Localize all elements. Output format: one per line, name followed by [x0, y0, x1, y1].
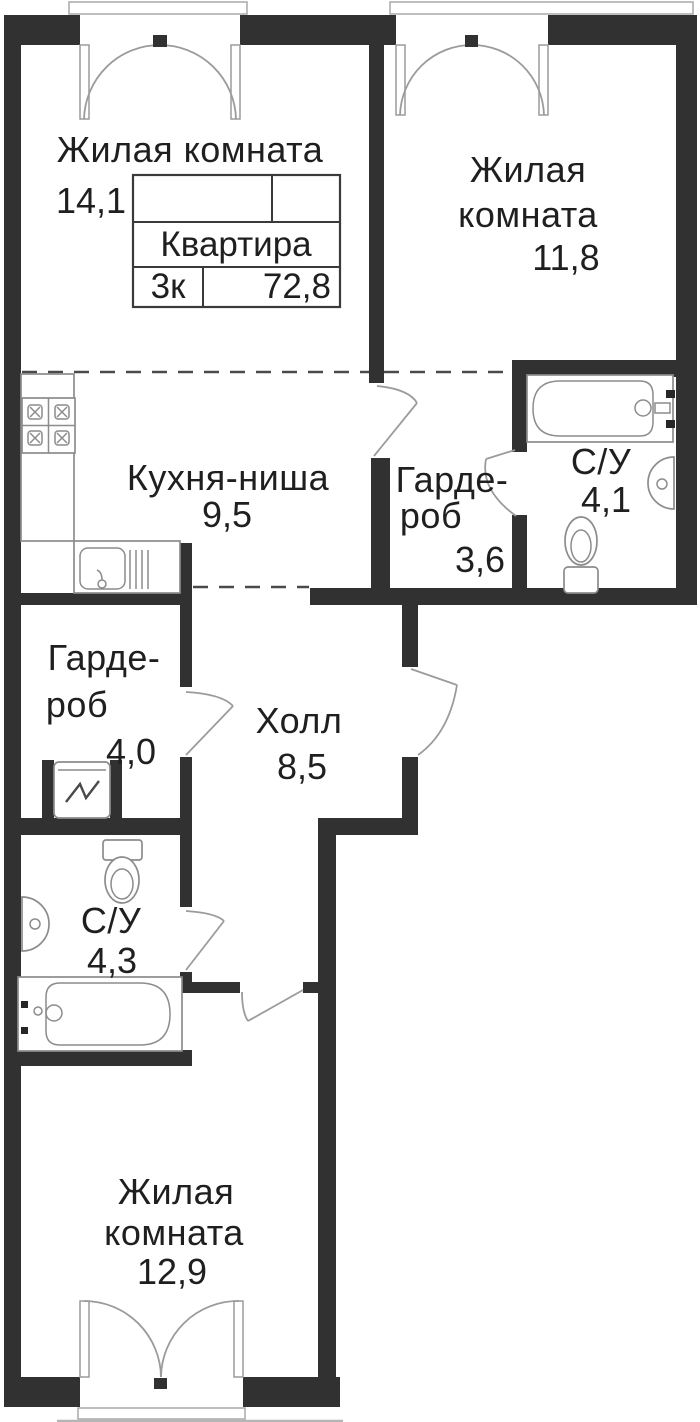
- room-area: 9,5: [202, 494, 252, 535]
- door-swing-arc: [161, 1301, 239, 1377]
- room-area: 4,3: [87, 940, 137, 981]
- wall-kitchen-bottom: [4, 593, 180, 605]
- door-swing-arc: [84, 1301, 161, 1377]
- wall-hall-bottom: [318, 818, 418, 835]
- wall-bathroom-top-left-upper: [512, 363, 527, 452]
- bathtub-outer: [18, 977, 182, 1051]
- wall-bathroom-bottom-right-upper: [180, 835, 192, 907]
- wall-washer-stub-left: [42, 760, 54, 818]
- door-swing-arc: [400, 45, 472, 115]
- room-area: 8,5: [277, 746, 327, 787]
- wall-bathroom-bottom-bottom: [4, 1050, 192, 1066]
- sill-top-right: [390, 2, 693, 14]
- wall-hall-right-upper: [402, 605, 418, 667]
- wall-corridor-bottom-right: [303, 982, 318, 993]
- room-name: Кухня-ниша: [127, 457, 330, 498]
- room-name-line1: Гарде-: [48, 637, 161, 678]
- door-swing-arc: [186, 692, 233, 706]
- wall-bathroom-bottom-top: [4, 818, 192, 835]
- washing-machine-icon: [54, 762, 110, 818]
- room-area: 14,1: [56, 180, 126, 221]
- toilet-icon: [564, 517, 598, 593]
- wall-top-right: [548, 15, 697, 45]
- toilet-tank: [564, 567, 598, 593]
- door-leaf: [234, 1301, 243, 1377]
- toilet-bowl: [565, 517, 597, 565]
- door-wardrobe-bottom: [186, 692, 233, 755]
- toilet-bowl: [105, 857, 139, 903]
- room-name-line1: Жилая: [118, 1171, 234, 1212]
- room-name-line2: комната: [458, 194, 598, 235]
- tap-dot: [666, 420, 675, 428]
- wall-hall-right-lower: [402, 757, 418, 818]
- apartment-info-box: Квартира 3к 72,8: [133, 175, 340, 307]
- info-box-title: Квартира: [160, 225, 312, 264]
- door-leaf: [80, 1301, 89, 1377]
- wall-corridor-bottom-left: [180, 982, 240, 993]
- washbasin-icon: [648, 457, 674, 509]
- room-name-line2: комната: [104, 1212, 244, 1253]
- info-box-total-area: 72,8: [263, 267, 331, 306]
- door-swing-arc: [472, 45, 544, 115]
- door-hinge: [154, 1378, 167, 1389]
- info-box-rooms-count: 3к: [151, 267, 186, 306]
- room-area: 4,1: [581, 479, 631, 520]
- door-leaf-line: [486, 450, 515, 459]
- door-entrance: [411, 669, 457, 755]
- balcony-door-top-left: [80, 35, 240, 119]
- room-name-line1: Гарде-: [396, 459, 509, 500]
- door-leaf-line: [248, 990, 303, 1021]
- wall-right: [676, 15, 697, 605]
- door-living-top-right: [374, 386, 417, 456]
- room-name-line2: роб: [46, 684, 108, 725]
- bathtub-icon: [18, 977, 182, 1051]
- balcony-door-top-right: [396, 35, 548, 115]
- room-name: С/У: [571, 441, 632, 482]
- tap-dot: [21, 1027, 28, 1034]
- room-area: 11,8: [532, 237, 599, 278]
- room-wardrobe-top: Гарде- роб 3,6: [396, 459, 509, 580]
- tap-dot: [666, 390, 675, 398]
- room-living-bottom: Жилая комната 12,9: [104, 1171, 244, 1292]
- wall-wardrobe-top-left: [371, 458, 390, 588]
- door-hinge: [153, 35, 167, 47]
- kitchen-sink-icon: [74, 541, 180, 593]
- sink-counter: [74, 541, 180, 593]
- tap-dot: [21, 1001, 28, 1008]
- wardrobe-bottom-fixtures: [54, 762, 110, 818]
- wall-bottom-right: [243, 1377, 340, 1407]
- door-swing-arc: [186, 911, 224, 921]
- floor-plan: Квартира 3к 72,8 Жилая комната 14,1 Жила…: [0, 0, 700, 1422]
- room-bathroom-bottom: С/У 4,3: [81, 900, 142, 981]
- washbasin-bowl: [648, 457, 674, 509]
- door-swing-arc: [160, 45, 236, 119]
- room-area: 12,9: [137, 1251, 207, 1292]
- wall-left: [4, 15, 21, 1407]
- room-wardrobe-bottom: Гарде- роб 4,0: [46, 637, 160, 772]
- door-swing-arc: [84, 45, 160, 119]
- balcony-door-bottom: [80, 1301, 243, 1389]
- wall-hall-left-upper: [180, 543, 192, 687]
- sill-top-left: [69, 2, 247, 14]
- room-name-line1: Жилая: [470, 149, 586, 190]
- bathtub-icon: [527, 375, 675, 442]
- sill-bottom: [78, 1408, 245, 1419]
- door-swing-arc: [418, 685, 457, 755]
- wall-room-divider: [369, 45, 384, 383]
- room-bathroom-top: С/У 4,1: [571, 441, 632, 520]
- room-name-line2: роб: [400, 495, 462, 536]
- door-bathroom-bottom: [186, 911, 224, 970]
- room-name: С/У: [81, 900, 142, 941]
- room-area: 3,6: [455, 539, 505, 580]
- door-leaf-line: [374, 403, 417, 456]
- door-leaf-line: [186, 921, 224, 970]
- room-name: Жилая комната: [57, 129, 324, 170]
- room-area: 4,0: [106, 731, 156, 772]
- room-kitchen-niche: Кухня-ниша 9,5: [127, 457, 330, 535]
- wall-middle-horizontal: [310, 588, 697, 605]
- wall-bathroom-top-left-lower: [512, 515, 527, 588]
- wall-lower-right-vertical: [318, 835, 336, 1377]
- door-living-bottom: [242, 990, 303, 1021]
- door-leaf-line: [411, 669, 457, 685]
- washbasin-icon: [22, 897, 49, 951]
- wall-top-middle: [240, 15, 396, 45]
- room-hall: Холл 8,5: [256, 700, 343, 787]
- stove-icon: [22, 398, 75, 453]
- room-name: Холл: [256, 700, 343, 741]
- washbasin-bowl: [22, 897, 49, 951]
- door-leaf-line: [186, 706, 233, 755]
- door-swing-arc: [242, 992, 248, 1021]
- floor-plan-drawing: Квартира 3к 72,8 Жилая комната 14,1 Жила…: [0, 0, 700, 1422]
- wall-bottom-left: [4, 1377, 80, 1407]
- door-swing-arc: [377, 386, 417, 403]
- door-hinge: [465, 35, 478, 47]
- toilet-icon: [103, 840, 142, 903]
- room-living-top-right: Жилая комната 11,8: [458, 149, 600, 278]
